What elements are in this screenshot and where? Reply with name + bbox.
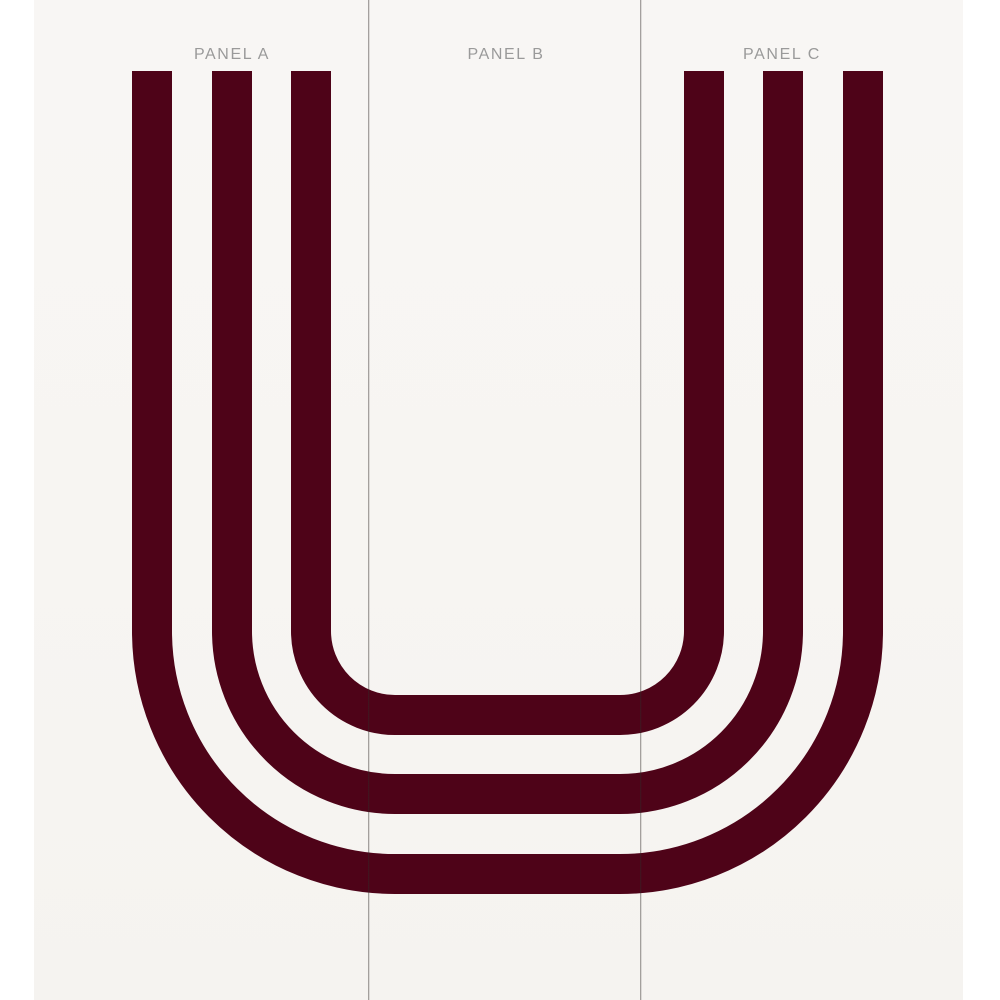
page: PANEL A PANEL B PANEL C bbox=[0, 0, 1000, 1000]
panel-seam-right bbox=[640, 0, 642, 1000]
panel-b-label: PANEL B bbox=[467, 47, 544, 63]
letter-u-artwork bbox=[0, 0, 1000, 1000]
panel-a-label: PANEL A bbox=[194, 47, 270, 63]
u-stripe-outer bbox=[152, 71, 863, 874]
panel-seam-left bbox=[368, 0, 370, 1000]
panel-c-label: PANEL C bbox=[743, 47, 821, 63]
